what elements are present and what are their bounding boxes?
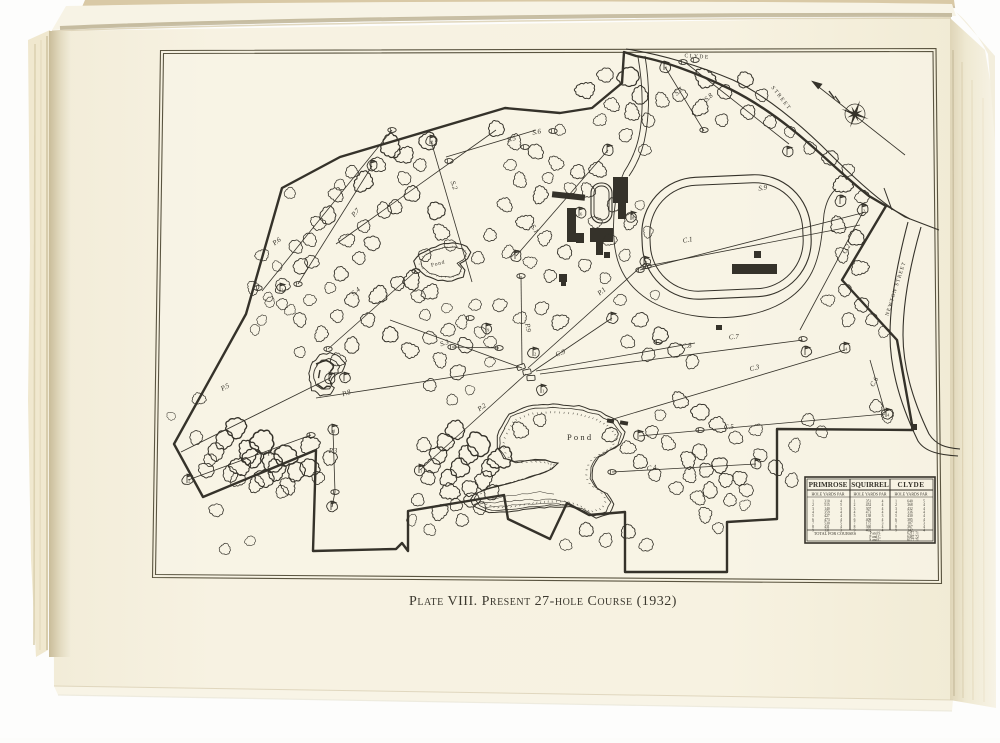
svg-text:CLYDE: CLYDE [898,481,925,489]
svg-text:9: 9 [895,529,897,533]
svg-text:PRIMROSE: PRIMROSE [809,481,848,489]
svg-text:4: 4 [923,529,925,533]
svg-text:TOTAL FOR COURSES: TOTAL FOR COURSES [814,531,857,536]
svg-text:C.8: C.8 [681,341,692,350]
svg-text:C.4: C.4 [646,463,657,472]
svg-text:HOLE YARDS PAR: HOLE YARDS PAR [853,492,886,497]
svg-text:HOLE YARDS PAR: HOLE YARDS PAR [894,492,927,497]
svg-text:C.7: C.7 [729,333,740,342]
svg-text:S.9: S.9 [758,183,768,192]
svg-text:C.1: C.1 [682,235,693,245]
svg-text:4: 4 [882,529,884,533]
svg-text:6177 71: 6177 71 [907,538,919,542]
svg-text:Plate VIII. Present 27-hole Co: Plate VIII. Present 27-hole Course (1932… [409,594,677,609]
svg-text:S and C: S and C [869,538,881,542]
svg-text:Pond: Pond [567,432,593,442]
svg-text:SQUIRREL: SQUIRREL [851,481,889,489]
svg-text:HOLE YARDS PAR: HOLE YARDS PAR [811,492,844,497]
